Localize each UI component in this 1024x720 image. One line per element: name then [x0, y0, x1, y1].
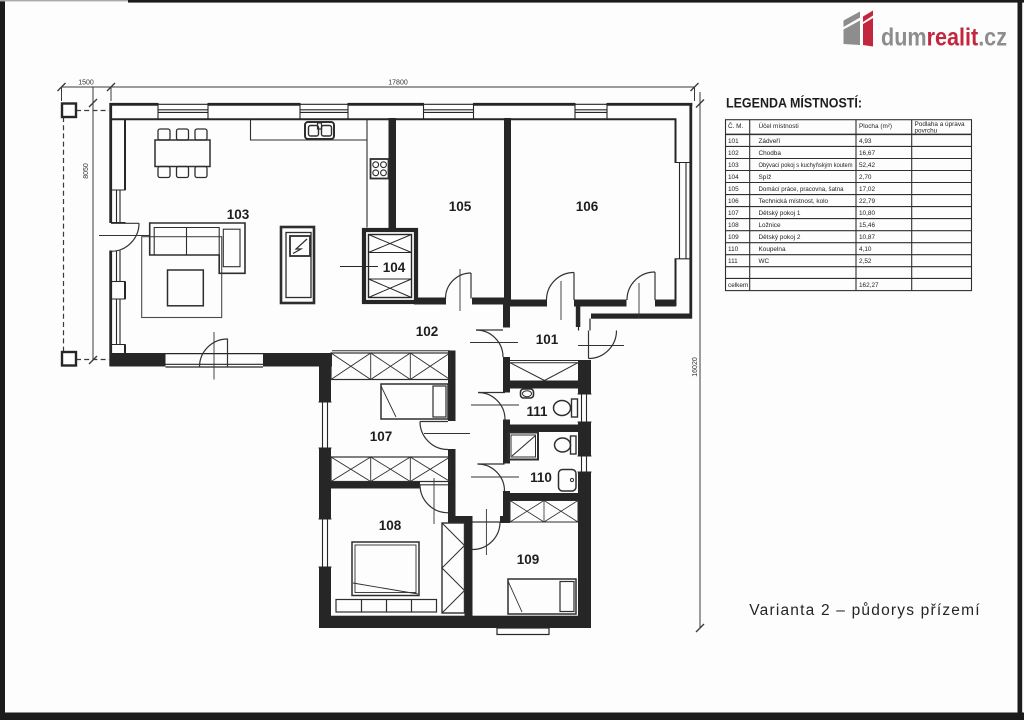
svg-text:103: 103 [728, 162, 739, 169]
svg-text:111: 111 [526, 404, 548, 419]
svg-text:102: 102 [728, 150, 739, 157]
svg-text:10,87: 10,87 [859, 234, 875, 241]
svg-text:52,42: 52,42 [859, 162, 875, 169]
svg-text:22,79: 22,79 [859, 198, 875, 205]
svg-text:101: 101 [728, 138, 739, 145]
svg-text:105: 105 [728, 186, 739, 193]
svg-text:2,52: 2,52 [859, 258, 872, 265]
svg-text:8050: 8050 [83, 163, 90, 179]
svg-text:Č. M.: Č. M. [728, 121, 743, 130]
svg-text:Chodba: Chodba [759, 150, 782, 157]
svg-text:106: 106 [728, 198, 739, 205]
svg-text:109: 109 [517, 552, 540, 567]
svg-text:4,10: 4,10 [859, 246, 872, 253]
svg-text:17800: 17800 [388, 80, 408, 87]
svg-text:Koupelna: Koupelna [759, 246, 786, 253]
svg-text:108: 108 [379, 518, 402, 533]
svg-text:Dětský pokoj 1: Dětský pokoj 1 [759, 210, 801, 217]
svg-text:1500: 1500 [78, 80, 94, 87]
svg-text:dumrealit.cz: dumrealit.cz [881, 24, 1007, 52]
svg-text:17,02: 17,02 [859, 186, 875, 193]
svg-text:2,70: 2,70 [859, 174, 872, 181]
svg-text:Technická místnost, kolo: Technická místnost, kolo [759, 198, 829, 205]
svg-text:106: 106 [576, 199, 599, 214]
svg-text:110: 110 [728, 246, 739, 253]
svg-text:4,93: 4,93 [859, 138, 872, 145]
svg-text:108: 108 [728, 222, 739, 229]
svg-text:WC: WC [759, 258, 770, 265]
svg-text:Plocha (m²): Plocha (m²) [859, 123, 892, 130]
svg-text:Spíž: Spíž [759, 174, 772, 181]
svg-text:103: 103 [227, 207, 250, 222]
svg-text:Domácí práce, pracovna, šatna: Domácí práce, pracovna, šatna [759, 186, 844, 193]
svg-text:10,80: 10,80 [859, 210, 875, 217]
svg-text:105: 105 [449, 199, 472, 214]
svg-text:Ložnice: Ložnice [759, 222, 781, 229]
svg-text:104: 104 [728, 174, 739, 181]
svg-text:107: 107 [370, 429, 393, 444]
svg-text:102: 102 [416, 324, 439, 339]
svg-text:Obývací pokoj s kuchyňským kou: Obývací pokoj s kuchyňským koutem [759, 162, 853, 169]
svg-text:16,67: 16,67 [859, 150, 875, 157]
svg-text:109: 109 [728, 234, 739, 241]
svg-text:celkem: celkem [728, 282, 748, 289]
svg-text:Dětský pokoj 2: Dětský pokoj 2 [759, 234, 801, 241]
svg-text:101: 101 [536, 332, 559, 347]
svg-text:110: 110 [530, 470, 552, 485]
svg-text:LEGENDA MÍSTNOSTÍ:: LEGENDA MÍSTNOSTÍ: [726, 95, 862, 111]
svg-text:162,27: 162,27 [859, 282, 879, 289]
svg-text:Zádveří: Zádveří [759, 138, 781, 145]
svg-text:104: 104 [383, 260, 406, 275]
svg-text:povrchu: povrchu [915, 128, 938, 135]
svg-text:Účel místnosti: Účel místnosti [759, 121, 799, 130]
svg-text:111: 111 [728, 258, 738, 265]
svg-text:107: 107 [728, 210, 739, 217]
svg-text:15,46: 15,46 [859, 222, 875, 229]
svg-text:Varianta 2 – půdorys přízemí: Varianta 2 – půdorys přízemí [749, 602, 980, 619]
svg-text:16020: 16020 [692, 357, 699, 377]
